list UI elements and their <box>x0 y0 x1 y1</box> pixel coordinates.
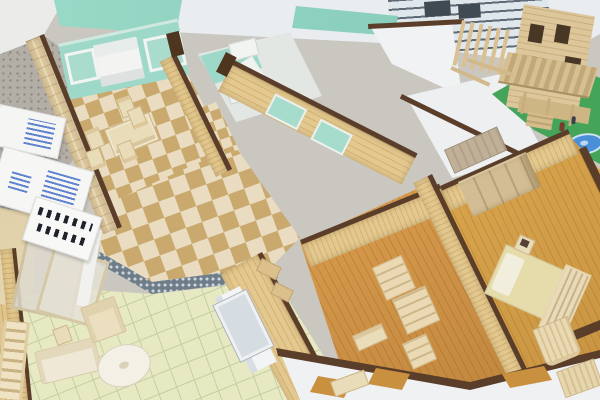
house-window <box>528 23 545 43</box>
table-center-detail <box>118 360 130 370</box>
card-blue-text <box>23 118 56 149</box>
card-blue-text <box>8 170 32 193</box>
model-photo: Top-down photograph of a miniature house… <box>0 0 600 400</box>
pool-center <box>580 140 589 146</box>
nightstand-item <box>520 238 530 248</box>
dining-wall-cabinet <box>93 37 145 87</box>
house-window <box>554 24 571 44</box>
wall-window-opening <box>310 119 353 156</box>
building-window-frame <box>424 0 451 17</box>
building-window-frame <box>458 3 481 19</box>
wall-window-opening <box>265 93 308 130</box>
